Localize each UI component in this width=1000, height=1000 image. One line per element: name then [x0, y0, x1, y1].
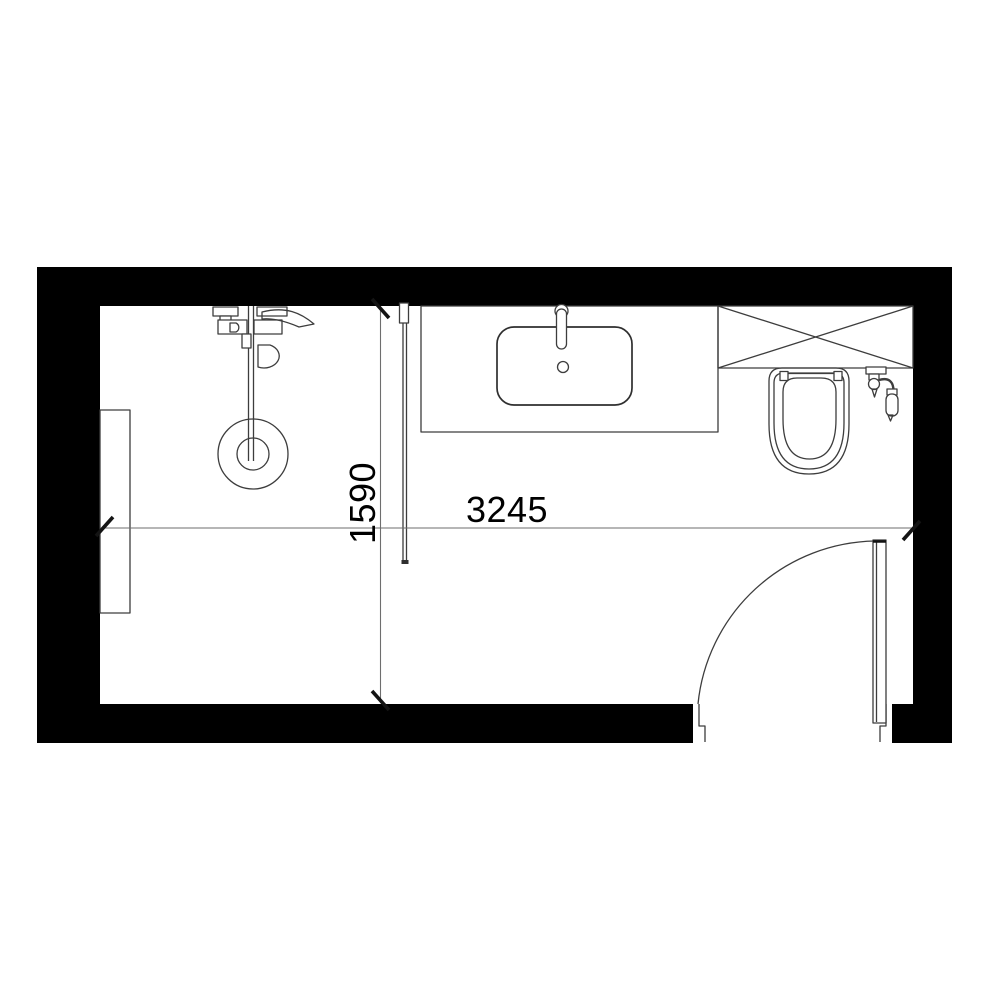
valve-wall-box-left	[213, 307, 238, 316]
wall-top	[37, 267, 952, 306]
wall-recess	[100, 410, 130, 613]
sprayer-knob	[869, 379, 880, 390]
wall-right	[913, 267, 952, 743]
dimension-vertical: 1590	[342, 299, 389, 710]
shower-mixer-valve	[213, 307, 314, 368]
door-leaf	[873, 540, 886, 723]
wall-bottom-right-segment	[892, 704, 952, 743]
vanity-unit	[421, 305, 718, 433]
valve-body-right	[254, 320, 282, 334]
floorplan-svg: 3245 1590	[0, 0, 1000, 1000]
dimension-label-vertical: 1590	[342, 462, 383, 544]
shower-fixture	[213, 306, 314, 489]
partition-end-cap	[402, 560, 409, 564]
sprayer-head-body	[886, 394, 898, 416]
dimension-label-horizontal: 3245	[466, 489, 548, 530]
door-jamb-left	[699, 704, 705, 742]
partition-wall-bracket	[400, 303, 409, 323]
toilet	[769, 368, 849, 474]
sprayer-knob-tip	[872, 389, 877, 397]
toilet-bowl	[783, 378, 836, 459]
shower-handle-knob	[258, 345, 279, 368]
toilet-seat-hinge-left	[780, 372, 788, 381]
toilet-outer-rim	[769, 368, 849, 474]
appliance-niche	[718, 306, 913, 368]
wall-bottom-left-segment	[37, 704, 693, 743]
sink-faucet-spout	[557, 309, 567, 349]
door-swing-arc	[698, 541, 875, 704]
toilet-inner-rim	[774, 373, 844, 469]
wall-left	[37, 267, 100, 743]
sprayer-wall-plate	[866, 367, 886, 374]
vanity-counter	[421, 306, 718, 432]
floorplan-canvas: 3245 1590	[0, 0, 1000, 1000]
valve-stem	[242, 334, 251, 348]
door	[698, 540, 886, 742]
toilet-seat-hinge-right	[834, 372, 842, 381]
dimension-horizontal: 3245	[96, 489, 920, 540]
hand-sprayer	[866, 367, 898, 421]
shower-glass-partition	[400, 303, 409, 564]
